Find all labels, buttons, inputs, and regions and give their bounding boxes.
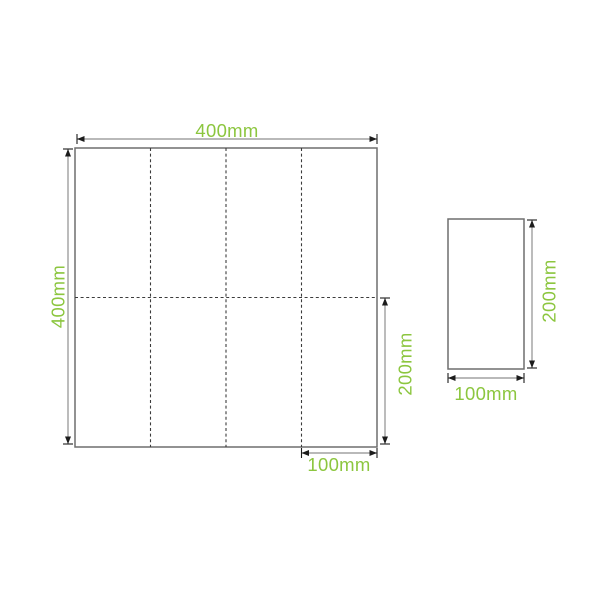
arrowhead-down-icon (529, 361, 535, 369)
unfolded-width-label: 400mm (195, 120, 258, 141)
folded-width-label: 100mm (454, 383, 517, 404)
dimension-folded-width: 100mm (448, 373, 524, 404)
arrowhead-down-icon (65, 437, 71, 445)
arrowhead-up-icon (65, 149, 71, 157)
arrowhead-right-icon (517, 375, 525, 381)
unfolded-napkin: 400mm 400mm 200mm (48, 120, 416, 475)
arrowhead-right-icon (370, 136, 378, 142)
dimension-unfolded-half-height: 200mm (380, 298, 416, 444)
dimension-unfolded-height: 400mm (48, 149, 74, 444)
folded-height-label: 200mm (539, 259, 560, 322)
arrowhead-up-icon (382, 298, 388, 306)
dimension-unfolded-width: 400mm (77, 120, 377, 144)
unfolded-height-label: 400mm (48, 265, 69, 328)
folded-napkin: 200mm 100mm (448, 219, 560, 404)
diagram-svg: 400mm 400mm 200mm (0, 0, 600, 600)
arrowhead-left-icon (77, 136, 85, 142)
napkin-dimensions-diagram: 400mm 400mm 200mm (0, 0, 600, 600)
arrowhead-right-icon (370, 450, 378, 456)
dimension-unfolded-panel-width: 100mm (302, 448, 378, 475)
arrowhead-up-icon (529, 220, 535, 228)
unfolded-panel-width-label: 100mm (307, 454, 370, 475)
arrowhead-down-icon (382, 437, 388, 445)
arrowhead-left-icon (448, 375, 456, 381)
dimension-folded-height: 200mm (527, 220, 560, 368)
unfolded-half-height-label: 200mm (395, 332, 416, 395)
folded-napkin-outline (448, 219, 524, 369)
